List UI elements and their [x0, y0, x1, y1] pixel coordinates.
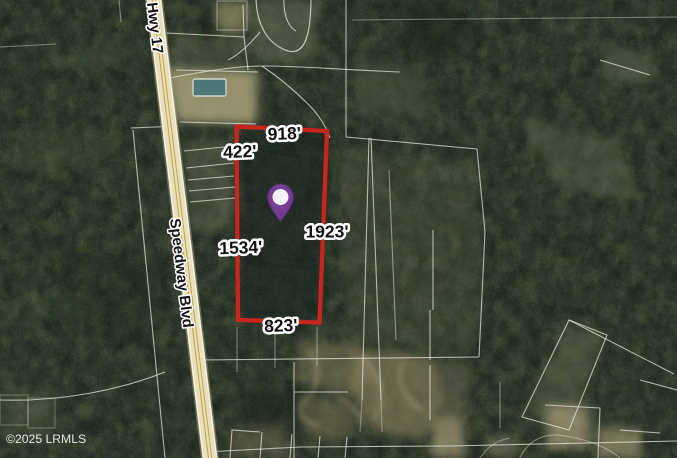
svg-text:1534': 1534' — [219, 237, 263, 258]
svg-text:422': 422' — [223, 141, 257, 162]
svg-text:918': 918' — [267, 123, 301, 144]
svg-text:©2025 LRMLS: ©2025 LRMLS — [6, 432, 86, 446]
svg-text:823': 823' — [264, 315, 298, 336]
svg-text:1923': 1923' — [305, 222, 348, 242]
